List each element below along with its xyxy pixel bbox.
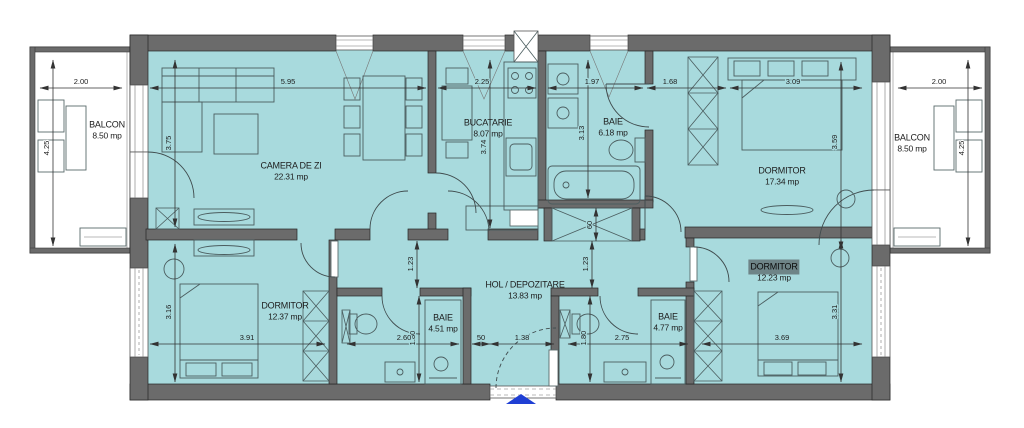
room-area: 8.50 mp bbox=[894, 144, 930, 154]
dim-label: 3.74 bbox=[479, 140, 488, 155]
room-label-balcon-right: BALCON 8.50 mp bbox=[894, 133, 930, 154]
room-name: BAIE bbox=[428, 313, 457, 324]
dim-label: 3.75 bbox=[164, 136, 173, 151]
room-label-dormitor-top: DORMITOR 17.34 mp bbox=[758, 166, 805, 187]
room-area: 17.34 mp bbox=[758, 177, 805, 187]
room-name: DORMITOR bbox=[261, 301, 308, 312]
room-area: 8.50 mp bbox=[89, 131, 125, 141]
dim-label: 5.95 bbox=[281, 77, 296, 86]
room-name[interactable]: DORMITOR bbox=[750, 262, 797, 273]
dim-label: 1.23 bbox=[581, 257, 590, 272]
dim-label: 3.69 bbox=[775, 333, 790, 342]
dim-label: 2.60 bbox=[397, 333, 412, 342]
dim-label: 3.59 bbox=[830, 135, 839, 150]
room-name: BAIE bbox=[598, 117, 627, 128]
dim-label: 1.68 bbox=[663, 77, 678, 86]
room-name: BALCON bbox=[894, 133, 930, 144]
room-area: 4.77 mp bbox=[653, 323, 682, 333]
dim-label: 2.00 bbox=[932, 77, 947, 86]
room-area: 12.23 mp bbox=[750, 273, 797, 283]
dim-label: 1.38 bbox=[515, 333, 530, 342]
room-name: BUCATARIE bbox=[464, 118, 512, 129]
dim-label: 4.25 bbox=[42, 141, 51, 156]
dim-label: 3.09 bbox=[786, 77, 801, 86]
room-label-baie-top: BAIE 6.18 mp bbox=[598, 117, 627, 138]
dim-label: 1.23 bbox=[406, 257, 415, 272]
room-name: HOL / DEPOZITARE bbox=[485, 280, 564, 291]
dim-label: 3.91 bbox=[240, 333, 255, 342]
dim-label: 1.80 bbox=[579, 331, 588, 346]
dim-label: 60 bbox=[585, 221, 594, 229]
room-label-baie-right: BAIE 4.77 mp bbox=[653, 312, 682, 333]
dim-label: 1.97 bbox=[585, 77, 600, 86]
dim-label: 3.13 bbox=[577, 126, 586, 141]
room-label-dormitor-left: DORMITOR 12.37 mp bbox=[261, 301, 308, 322]
plan-linework: 2.00 5.95 2.25 1.97 1.68 3.09 2.00 4.25 … bbox=[0, 0, 1024, 428]
room-name: BAIE bbox=[653, 312, 682, 323]
room-area: 13.83 mp bbox=[485, 291, 564, 301]
room-label-hol: HOL / DEPOZITARE 13.83 mp bbox=[485, 280, 564, 301]
room-label-dormitor-right-selected[interactable]: DORMITOR 12.23 mp bbox=[750, 262, 797, 283]
room-area: 6.18 mp bbox=[598, 128, 627, 138]
dim-label: 2.75 bbox=[615, 333, 630, 342]
room-name: BALCON bbox=[89, 120, 125, 131]
dim-label: 3.16 bbox=[164, 305, 173, 320]
room-area: 4.51 mp bbox=[428, 324, 457, 334]
room-name: CAMERA DE ZI bbox=[260, 161, 321, 172]
dim-label: 2.25 bbox=[475, 77, 490, 86]
floor-plan: 2.00 5.95 2.25 1.97 1.68 3.09 2.00 4.25 … bbox=[0, 0, 1024, 428]
dim-label: 2.00 bbox=[74, 77, 89, 86]
room-label-camera-de-zi: CAMERA DE ZI 22.31 mp bbox=[260, 161, 321, 182]
room-area: 22.31 mp bbox=[260, 172, 321, 182]
room-label-balcon-left: BALCON 8.50 mp bbox=[89, 120, 125, 141]
dim-label: 3.31 bbox=[830, 305, 839, 320]
room-area: 8.07 mp bbox=[464, 129, 512, 139]
room-area: 12.37 mp bbox=[261, 312, 308, 322]
room-label-baie-left: BAIE 4.51 mp bbox=[428, 313, 457, 334]
room-name: DORMITOR bbox=[758, 166, 805, 177]
room-label-bucatarie: BUCATARIE 8.07 mp bbox=[464, 118, 512, 139]
ventilation-shaft bbox=[514, 31, 538, 62]
dim-label: 50 bbox=[477, 333, 485, 342]
dim-label: 4.25 bbox=[957, 141, 966, 156]
